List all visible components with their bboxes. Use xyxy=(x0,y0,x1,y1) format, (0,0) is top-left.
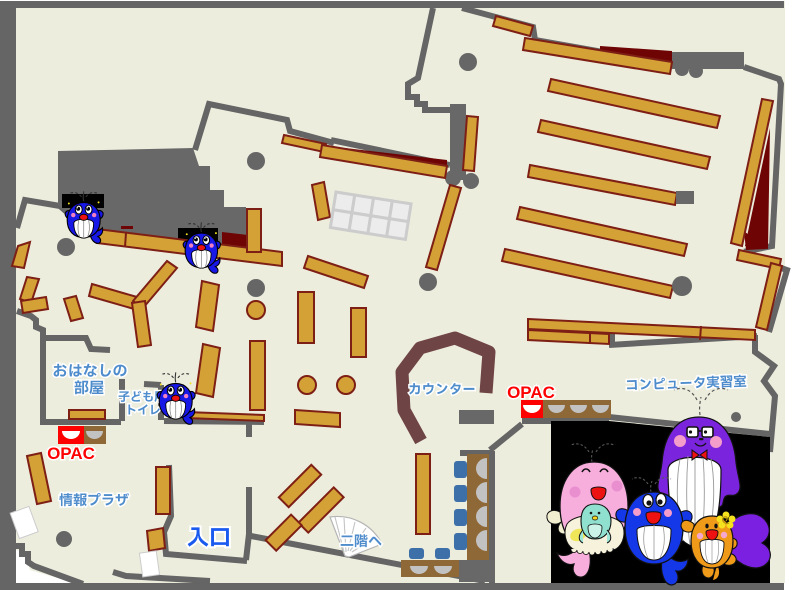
svg-text:OPAC: OPAC xyxy=(507,383,555,402)
svg-text:OPAC: OPAC xyxy=(47,444,95,463)
